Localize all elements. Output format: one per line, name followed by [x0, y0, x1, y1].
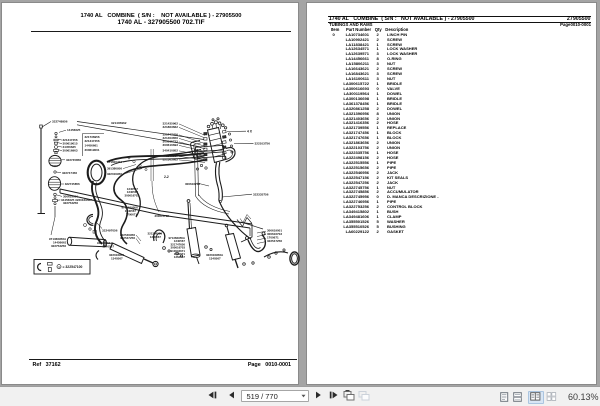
svg-text:340410952: 340410952: [163, 149, 179, 153]
svg-text:1340567: 1340567: [209, 257, 221, 261]
svg-text:322016956: 322016956: [107, 172, 122, 176]
svg-text:322753256: 322753256: [51, 244, 66, 248]
svg-text:321435962: 321435962: [111, 121, 127, 125]
svg-text:300616703: 300616703: [125, 194, 140, 198]
svg-text:1364567: 1364567: [174, 255, 186, 259]
svg-text:300616963: 300616963: [63, 149, 78, 153]
svg-text:1340567: 1340567: [111, 257, 123, 261]
svg-text:322747456: 322747456: [62, 171, 77, 175]
svg-text:1340567: 1340567: [150, 235, 162, 239]
svg-text:322335756: 322335756: [253, 193, 269, 197]
svg-text:391386956: 391386956: [107, 167, 122, 171]
svg-text:300619001: 300619001: [85, 148, 100, 152]
svg-text:300616693: 300616693: [163, 143, 179, 147]
svg-text:322547256: 322547256: [120, 236, 135, 240]
svg-text:14456661: 14456661: [85, 144, 99, 148]
svg-text:321347456: 321347456: [85, 139, 100, 143]
svg-text:1340567: 1340567: [102, 245, 114, 249]
svg-text:321863662: 321863662: [163, 125, 179, 129]
svg-text:= 322547100: = 322547100: [63, 265, 83, 269]
svg-text:322745856: 322745856: [65, 182, 80, 186]
svg-text:322745856: 322745856: [66, 158, 81, 162]
svg-text:4 X: 4 X: [247, 130, 253, 134]
svg-text:321736956: 321736956: [85, 135, 100, 139]
svg-text:322748956: 322748956: [52, 120, 68, 124]
svg-text:2-2: 2-2: [164, 175, 169, 179]
svg-text:322547256: 322547256: [267, 239, 282, 243]
svg-text:14456625: 14456625: [67, 128, 81, 132]
svg-text:322103756: 322103756: [255, 142, 271, 146]
svg-text:322753256: 322753256: [63, 201, 78, 205]
svg-text:322497056: 322497056: [102, 229, 118, 233]
